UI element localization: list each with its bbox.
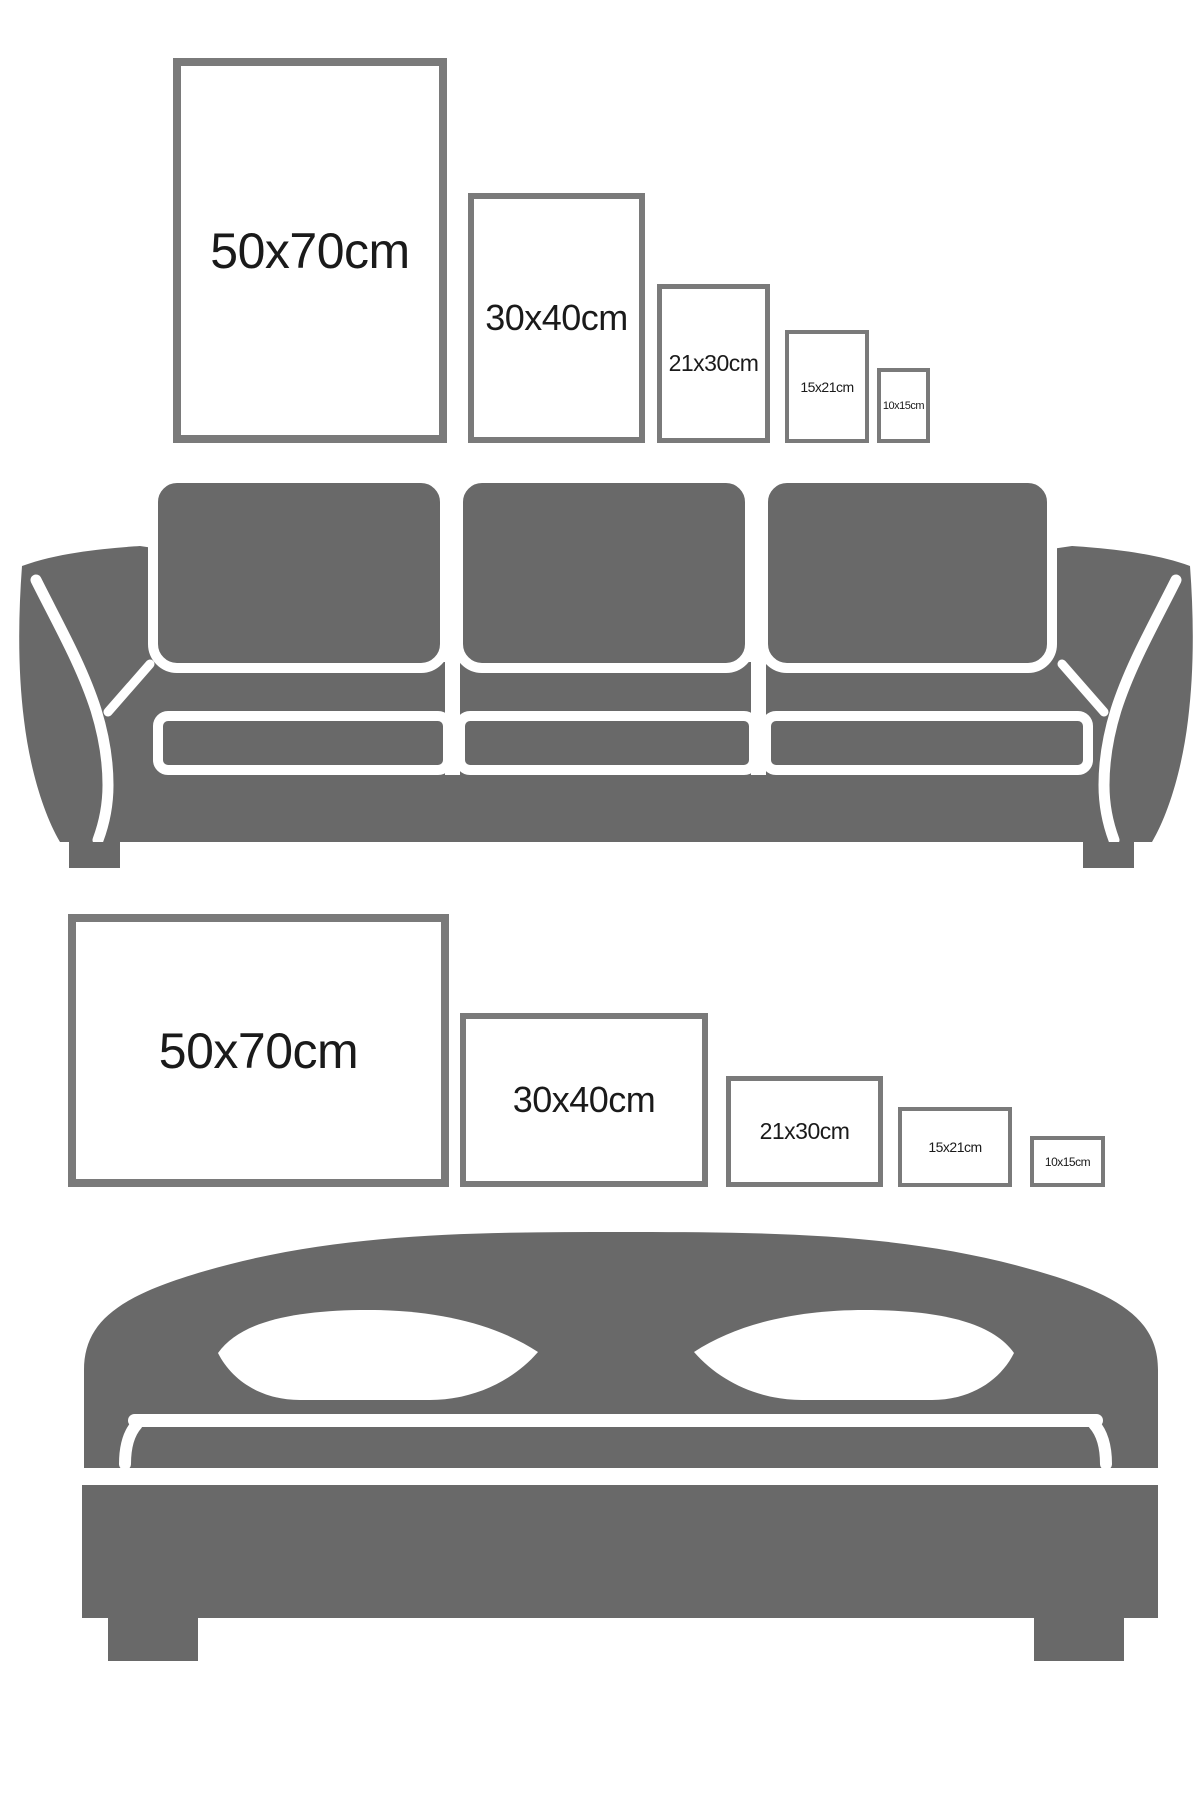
bed-mattress-line <box>128 1414 1103 1427</box>
bed-foot <box>108 1618 198 1661</box>
frame-size-label: 21x30cm <box>669 350 759 377</box>
sofa-back-cushion <box>763 478 1052 668</box>
frame-portrait-50x70: 50x70cm <box>173 58 447 443</box>
frame-landscape-30x40: 30x40cm <box>460 1013 708 1187</box>
poster-size-guide: 50x70cm 30x40cm 21x30cm 15x21cm 10x15cm <box>0 0 1200 1800</box>
frame-size-label: 50x70cm <box>159 1022 358 1080</box>
sofa-foot <box>69 842 120 868</box>
frame-size-label: 30x40cm <box>485 297 628 339</box>
sofa-foot <box>1083 842 1134 868</box>
frame-size-label: 15x21cm <box>800 379 853 395</box>
frame-portrait-15x21: 15x21cm <box>785 330 869 443</box>
sofa-seat-cushion <box>158 716 448 770</box>
frame-portrait-10x15: 10x15cm <box>877 368 930 443</box>
frame-size-label: 21x30cm <box>760 1118 850 1145</box>
sofa-back-cushion <box>458 478 750 668</box>
frame-portrait-21x30: 21x30cm <box>657 284 770 443</box>
bed-icon <box>0 1210 1200 1680</box>
bed-base <box>82 1485 1158 1618</box>
sofa-seat-cushion <box>460 716 754 770</box>
bed-foot <box>1034 1618 1124 1661</box>
sofa-back-cushion <box>153 478 445 668</box>
frame-landscape-10x15: 10x15cm <box>1030 1136 1105 1187</box>
frame-size-label: 50x70cm <box>210 222 409 280</box>
frame-size-label: 10x15cm <box>1045 1155 1090 1169</box>
sofa-icon <box>0 450 1200 880</box>
sofa-seat-cushion <box>766 716 1088 770</box>
frame-size-label: 15x21cm <box>928 1139 981 1155</box>
frame-size-label: 10x15cm <box>883 400 924 412</box>
frame-landscape-50x70: 50x70cm <box>68 914 449 1187</box>
frame-landscape-15x21: 15x21cm <box>898 1107 1012 1187</box>
frame-size-label: 30x40cm <box>513 1079 656 1121</box>
frame-portrait-30x40: 30x40cm <box>468 193 645 443</box>
frame-landscape-21x30: 21x30cm <box>726 1076 883 1187</box>
